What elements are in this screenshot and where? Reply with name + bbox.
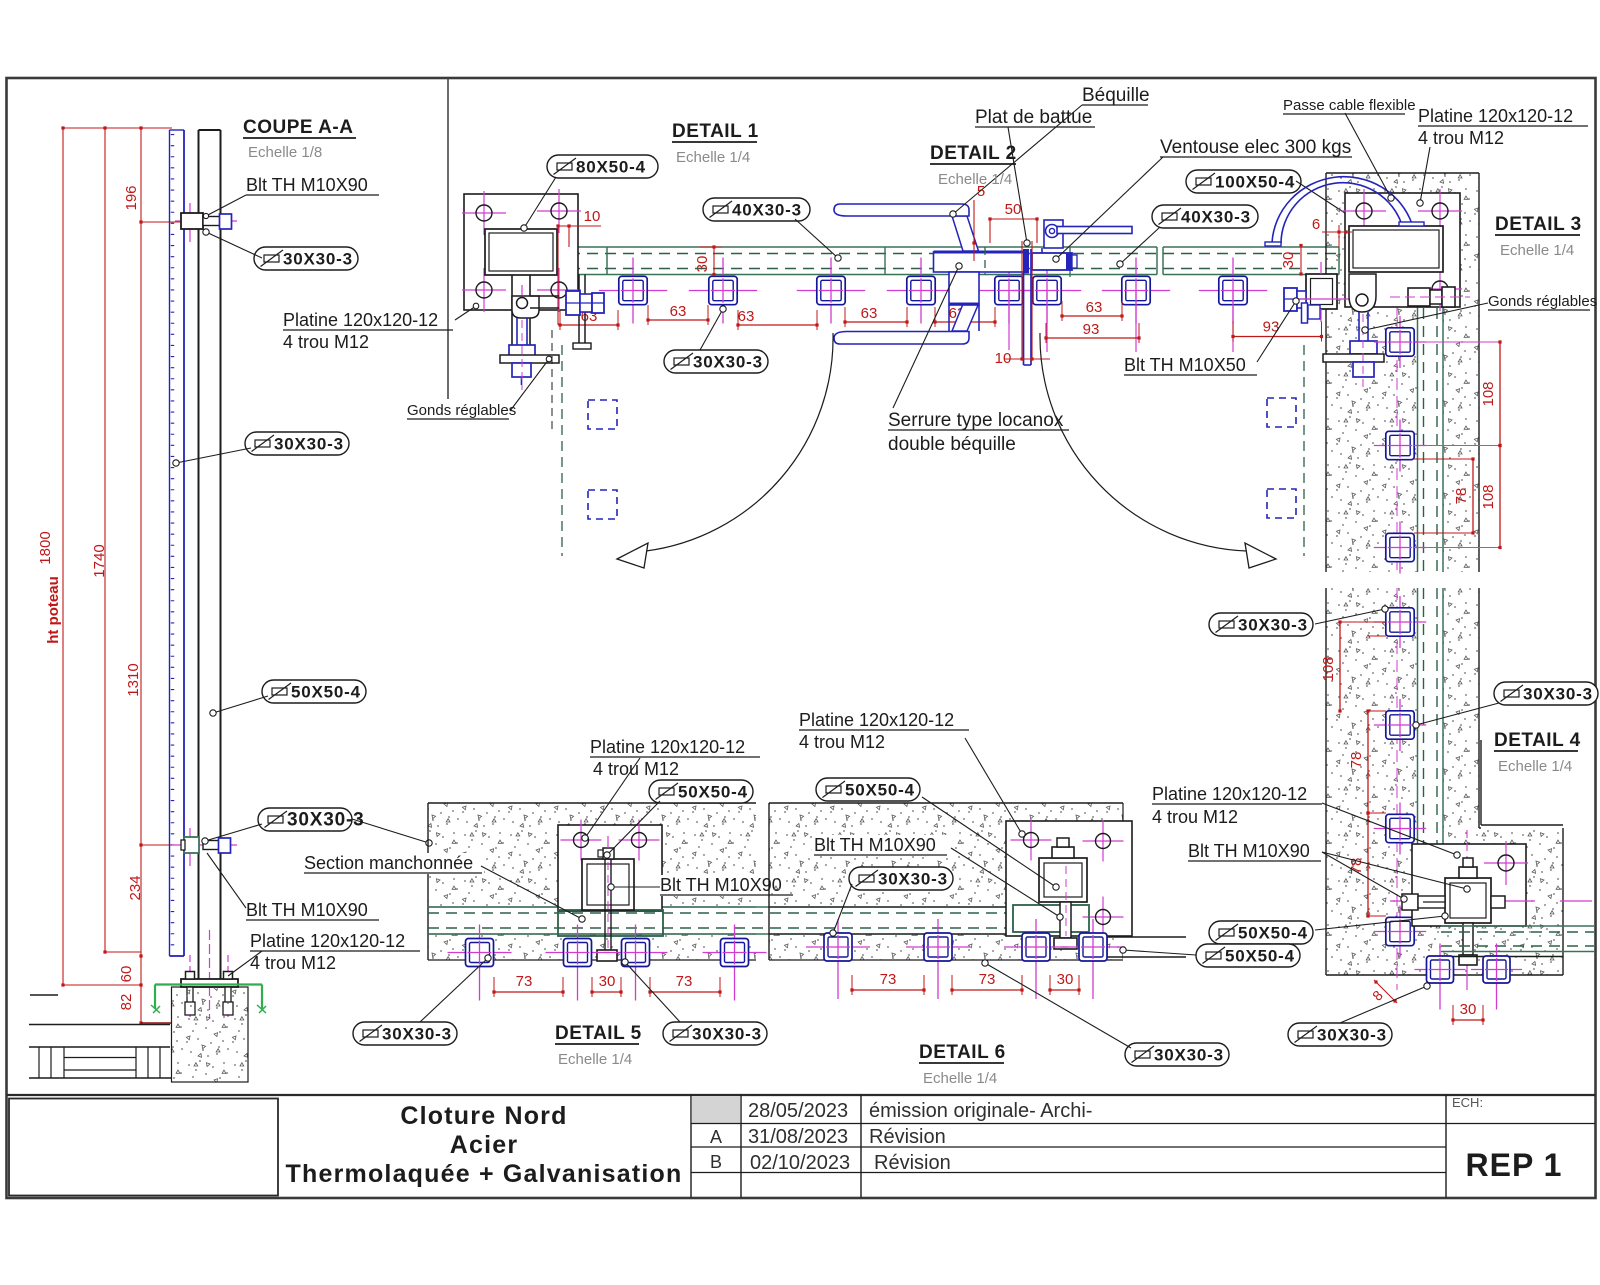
svg-text:30X30-3: 30X30-3 — [1154, 1046, 1224, 1065]
svg-text:78: 78 — [1348, 752, 1365, 769]
svg-text:Platine 120x120-12: Platine 120x120-12 — [590, 737, 745, 757]
svg-text:COUPE A-A: COUPE A-A — [243, 117, 353, 138]
svg-text:30X30-3: 30X30-3 — [878, 870, 948, 889]
svg-text:4 trou M12: 4 trou M12 — [593, 759, 679, 779]
svg-text:02/10/2023: 02/10/2023 — [750, 1152, 850, 1174]
svg-text:Echelle 1/4: Echelle 1/4 — [558, 1051, 632, 1068]
svg-text:63: 63 — [1086, 299, 1103, 316]
svg-text:50X50-4: 50X50-4 — [678, 783, 748, 802]
svg-text:Echelle 1/8: Echelle 1/8 — [248, 144, 322, 161]
svg-text:50X50-4: 50X50-4 — [845, 781, 915, 800]
svg-text:Section manchonnée: Section manchonnée — [304, 853, 473, 873]
svg-text:Echelle 1/4: Echelle 1/4 — [923, 1070, 997, 1087]
svg-text:Gonds réglables: Gonds réglables — [407, 402, 516, 419]
svg-text:6: 6 — [1312, 216, 1320, 233]
svg-text:50: 50 — [1005, 201, 1022, 218]
svg-text:Platine 120x120-12: Platine 120x120-12 — [250, 931, 405, 951]
svg-text:DETAIL 3: DETAIL 3 — [1495, 214, 1582, 235]
svg-text:Blt TH M10X50: Blt TH M10X50 — [1124, 355, 1246, 375]
svg-text:Ventouse elec 300 kgs: Ventouse elec 300 kgs — [1160, 137, 1351, 158]
svg-text:30: 30 — [1280, 252, 1297, 269]
svg-text:REP 1: REP 1 — [1466, 1147, 1563, 1183]
svg-text:73: 73 — [676, 973, 693, 990]
svg-text:93: 93 — [1263, 319, 1280, 336]
svg-text:double béquille: double béquille — [888, 434, 1016, 455]
svg-text:82: 82 — [118, 994, 135, 1011]
svg-text:78: 78 — [1453, 488, 1470, 505]
svg-text:Acier: Acier — [450, 1131, 519, 1159]
svg-text:108: 108 — [1480, 484, 1497, 509]
svg-text:Echelle 1/4: Echelle 1/4 — [938, 171, 1012, 188]
svg-text:108: 108 — [1320, 656, 1337, 681]
svg-text:Blt TH M10X90: Blt TH M10X90 — [814, 835, 936, 855]
svg-text:4 trou M12: 4 trou M12 — [283, 332, 369, 352]
svg-text:93: 93 — [1083, 321, 1100, 338]
svg-text:108: 108 — [1480, 381, 1497, 406]
svg-text:10: 10 — [995, 350, 1012, 367]
svg-text:30: 30 — [1460, 1001, 1477, 1018]
svg-text:234: 234 — [127, 875, 144, 900]
svg-text:Platine 120x120-12: Platine 120x120-12 — [1152, 784, 1307, 804]
svg-text:Blt TH M10X90: Blt TH M10X90 — [246, 175, 368, 195]
svg-text:Platine 120x120-12: Platine 120x120-12 — [1418, 106, 1573, 126]
svg-text:ECH:: ECH: — [1452, 1095, 1483, 1110]
svg-text:30X30-3: 30X30-3 — [274, 435, 344, 454]
svg-text:100X50-4: 100X50-4 — [1215, 173, 1295, 192]
svg-text:40X30-3: 40X30-3 — [1181, 208, 1251, 227]
svg-text:Plat de battue: Plat de battue — [975, 107, 1092, 128]
svg-text:Cloture Nord: Cloture Nord — [400, 1102, 567, 1130]
svg-text:Serrure type locanox: Serrure type locanox — [888, 410, 1064, 431]
svg-text:30X30-3: 30X30-3 — [1317, 1026, 1387, 1045]
svg-text:Thermolaquée + Galvanisation: Thermolaquée + Galvanisation — [286, 1160, 683, 1188]
svg-text:DETAIL 2: DETAIL 2 — [930, 143, 1017, 164]
svg-text:31/08/2023: 31/08/2023 — [748, 1126, 848, 1148]
svg-text:50X50-4: 50X50-4 — [1225, 947, 1295, 966]
svg-text:30: 30 — [599, 973, 616, 990]
svg-text:DETAIL 5: DETAIL 5 — [555, 1023, 642, 1044]
svg-text:30X30-3: 30X30-3 — [287, 810, 364, 831]
svg-text:4 trou M12: 4 trou M12 — [1418, 128, 1504, 148]
svg-text:63: 63 — [738, 308, 755, 325]
svg-text:4 trou M12: 4 trou M12 — [250, 953, 336, 973]
svg-text:28/05/2023: 28/05/2023 — [748, 1100, 848, 1122]
svg-text:50X50-4: 50X50-4 — [1238, 924, 1308, 943]
svg-text:1310: 1310 — [125, 663, 142, 696]
svg-text:30X30-3: 30X30-3 — [382, 1025, 452, 1044]
svg-text:63: 63 — [670, 303, 687, 320]
svg-text:73: 73 — [880, 971, 897, 988]
svg-text:Platine 120x120-12: Platine 120x120-12 — [799, 710, 954, 730]
svg-text:4 trou M12: 4 trou M12 — [799, 732, 885, 752]
svg-text:Béquille: Béquille — [1082, 85, 1150, 106]
svg-text:Echelle 1/4: Echelle 1/4 — [1498, 758, 1572, 775]
svg-text:30X30-3: 30X30-3 — [1523, 685, 1593, 704]
svg-text:DETAIL 1: DETAIL 1 — [672, 121, 759, 142]
svg-text:30X30-3: 30X30-3 — [1238, 616, 1308, 635]
svg-text:30: 30 — [1057, 971, 1074, 988]
svg-text:Blt TH M10X90: Blt TH M10X90 — [1188, 841, 1310, 861]
svg-text:63: 63 — [861, 305, 878, 322]
svg-text:196: 196 — [123, 185, 140, 210]
svg-text:Echelle 1/4: Echelle 1/4 — [676, 149, 750, 166]
svg-text:40X30-3: 40X30-3 — [732, 201, 802, 220]
svg-text:Révision: Révision — [874, 1152, 951, 1174]
svg-text:60: 60 — [118, 966, 135, 983]
svg-text:B: B — [710, 1152, 722, 1172]
svg-text:émission originale- Archi-: émission originale- Archi- — [869, 1100, 1092, 1122]
svg-text:10: 10 — [584, 208, 601, 225]
svg-text:Platine 120x120-12: Platine 120x120-12 — [283, 310, 438, 330]
svg-text:Passe cable flexible: Passe cable flexible — [1283, 97, 1416, 114]
svg-text:30X30-3: 30X30-3 — [283, 250, 353, 269]
svg-text:Blt TH M10X90: Blt TH M10X90 — [246, 900, 368, 920]
svg-text:30: 30 — [694, 256, 711, 273]
svg-text:1800: 1800 — [37, 531, 54, 564]
svg-text:1740: 1740 — [91, 544, 108, 577]
svg-text:DETAIL 4: DETAIL 4 — [1494, 730, 1581, 751]
svg-text:30X30-3: 30X30-3 — [692, 1025, 762, 1044]
svg-text:A: A — [710, 1127, 722, 1147]
svg-text:73: 73 — [516, 973, 533, 990]
svg-text:4 trou M12: 4 trou M12 — [1152, 807, 1238, 827]
svg-text:Gonds réglables: Gonds réglables — [1488, 293, 1597, 310]
svg-text:73: 73 — [979, 971, 996, 988]
svg-text:50X50-4: 50X50-4 — [291, 683, 361, 702]
svg-text:80X50-4: 80X50-4 — [576, 158, 646, 177]
svg-text:Echelle 1/4: Echelle 1/4 — [1500, 242, 1574, 259]
svg-text:30X30-3: 30X30-3 — [693, 353, 763, 372]
svg-text:DETAIL 6: DETAIL 6 — [919, 1042, 1006, 1063]
svg-text:ht poteau: ht poteau — [45, 576, 62, 644]
svg-text:Blt TH M10X90: Blt TH M10X90 — [660, 875, 782, 895]
svg-text:Révision: Révision — [869, 1126, 946, 1148]
